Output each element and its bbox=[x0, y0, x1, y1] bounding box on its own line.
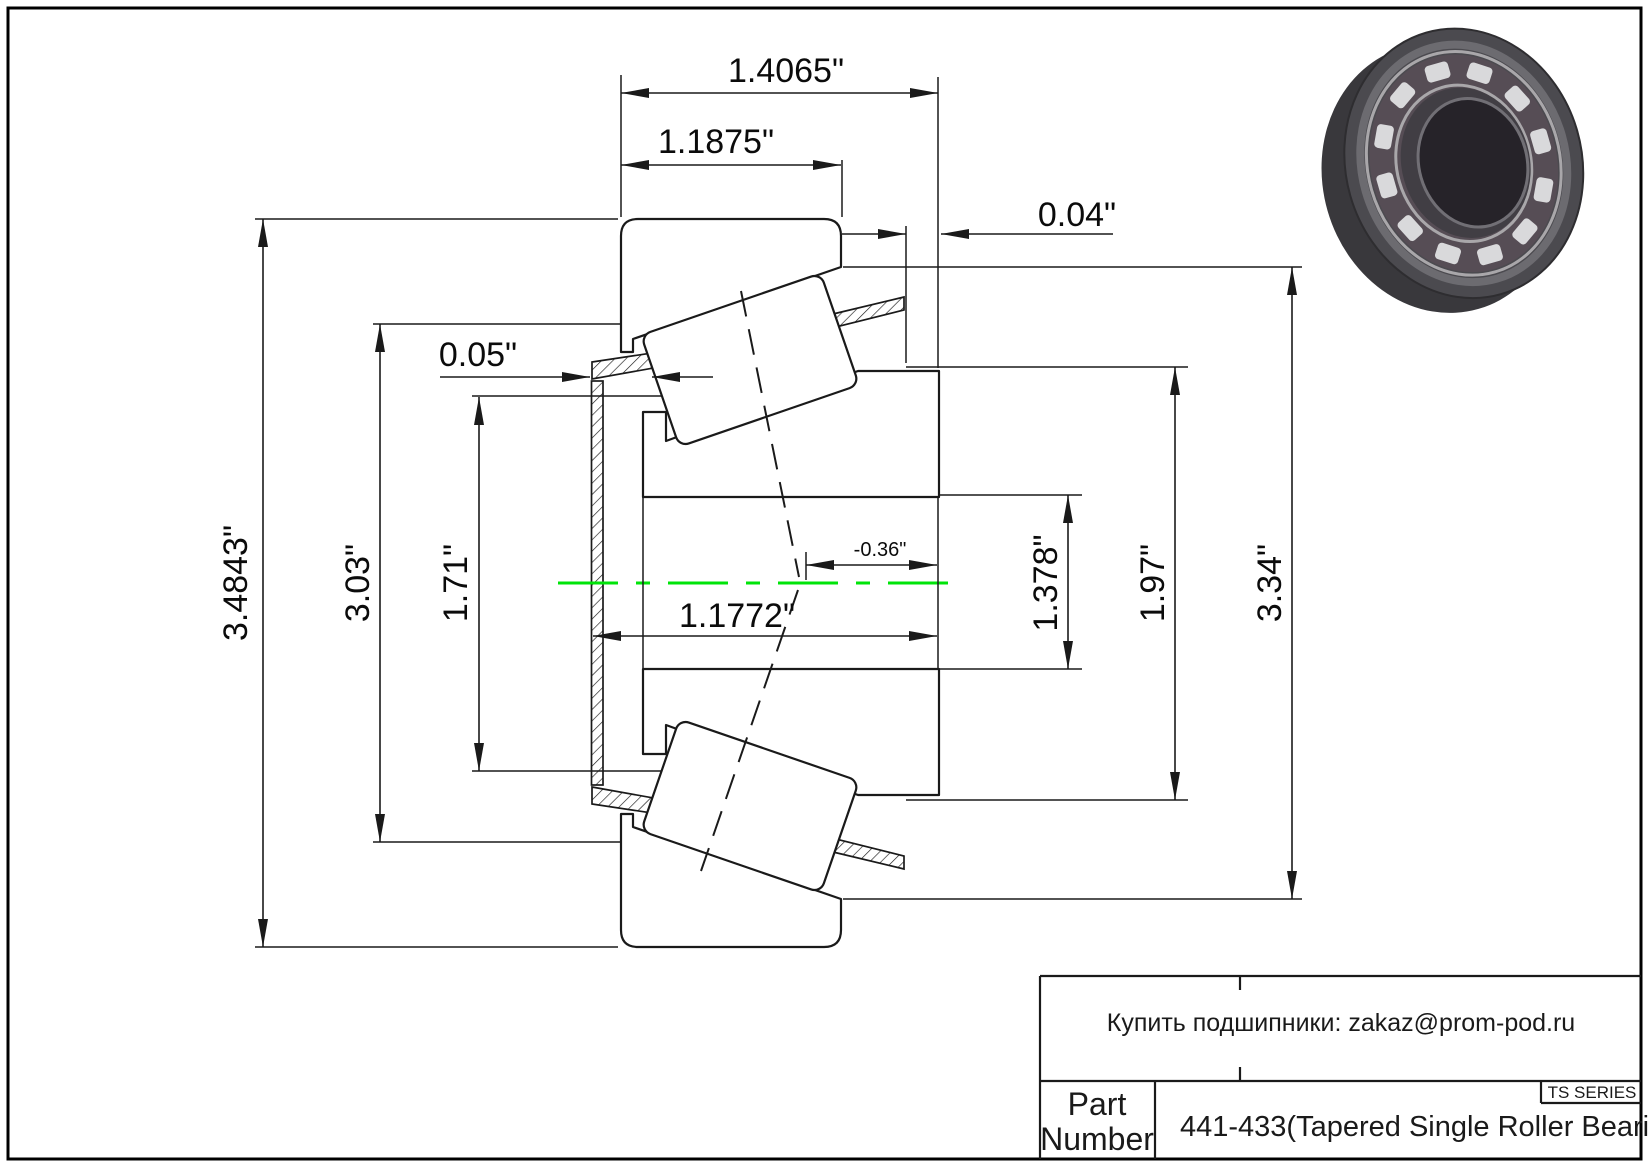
dim-center-offset: -0.36" bbox=[806, 539, 937, 565]
cage-strip-bottom-right bbox=[833, 839, 904, 869]
bearing-cross-section bbox=[558, 219, 962, 947]
dim-overall-width-label: 1.4065" bbox=[728, 52, 844, 90]
dim-right-offset: 0.04" bbox=[842, 196, 1116, 234]
dim-cup-width: 1.1875" bbox=[621, 123, 841, 165]
bearing-photo bbox=[1288, 0, 1617, 341]
engineering-drawing: 1.4065" 1.1875" 0.04" 0.05" 3.4843" 3.03… bbox=[0, 0, 1649, 1167]
dim-outer-dia-1-label: 3.4843" bbox=[217, 525, 255, 641]
dim-cage-protrusion-label: 0.05" bbox=[439, 336, 517, 374]
dim-inner-step-dia: 1.71" bbox=[437, 397, 479, 771]
dim-rib-dia: 1.97" bbox=[1134, 367, 1175, 800]
dim-cup-width-label: 1.1875" bbox=[658, 123, 774, 161]
series-badge: TS SERIES bbox=[1548, 1083, 1637, 1102]
roller-top bbox=[641, 273, 859, 446]
dim-overall-width: 1.4065" bbox=[621, 52, 938, 93]
cage-strip-top-right bbox=[833, 297, 904, 327]
dim-cone-width-label: 1.1772" bbox=[679, 597, 795, 635]
dim-outer-dia-2: 3.03" bbox=[339, 324, 380, 842]
dim-cup-od: 3.34" bbox=[1251, 267, 1292, 899]
supplier-note: Купить подшипники: zakaz@prom-pod.ru bbox=[1107, 1009, 1575, 1037]
dim-outer-dia-1: 3.4843" bbox=[217, 219, 263, 947]
dim-inner-step-dia-label: 1.71" bbox=[437, 544, 475, 622]
part-number-label-line1: Part bbox=[1068, 1086, 1127, 1122]
part-description: 441-433(Tapered Single Roller Bearings) bbox=[1180, 1111, 1649, 1143]
dim-outer-dia-2-label: 3.03" bbox=[339, 544, 377, 622]
dim-rib-dia-label: 1.97" bbox=[1134, 544, 1172, 622]
drawing-page: 1.4065" 1.1875" 0.04" 0.05" 3.4843" 3.03… bbox=[0, 0, 1649, 1167]
dim-bore-dia-label: 1.378" bbox=[1027, 534, 1065, 631]
dim-center-offset-label: -0.36" bbox=[854, 539, 907, 561]
dim-cup-od-label: 3.34" bbox=[1251, 544, 1289, 622]
dim-cone-width: 1.1772" bbox=[593, 597, 937, 636]
dim-bore-dia: 1.378" bbox=[1027, 495, 1068, 669]
dim-right-offset-label: 0.04" bbox=[1038, 196, 1116, 234]
roller-bottom bbox=[641, 719, 859, 892]
part-number-label-line2: Number bbox=[1040, 1121, 1154, 1157]
